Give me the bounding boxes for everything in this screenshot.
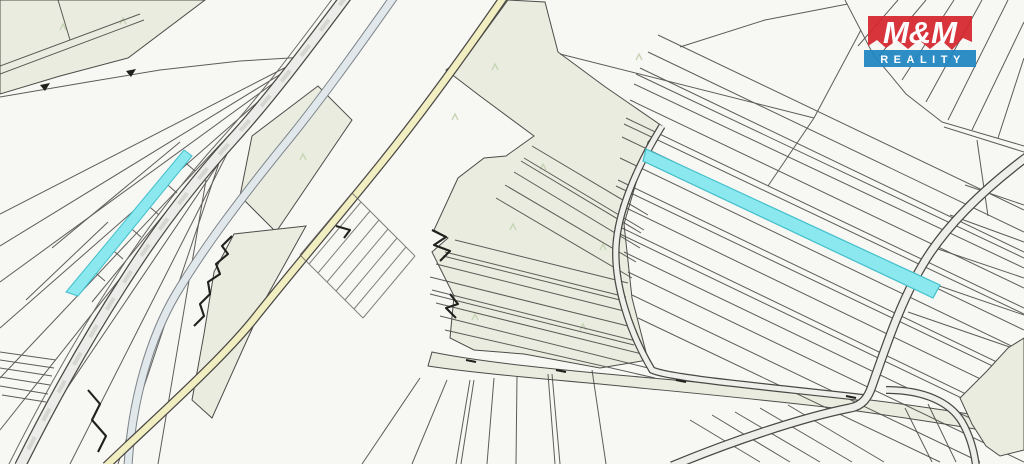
logo-tagline-text: REALITY [880,54,966,66]
map-screenshot: M&M REALITY [0,0,1024,464]
cadastral-map: M&M REALITY [0,0,1024,464]
brand-logo: M&M REALITY [864,15,976,67]
logo-brand-text: M&M [883,15,958,50]
